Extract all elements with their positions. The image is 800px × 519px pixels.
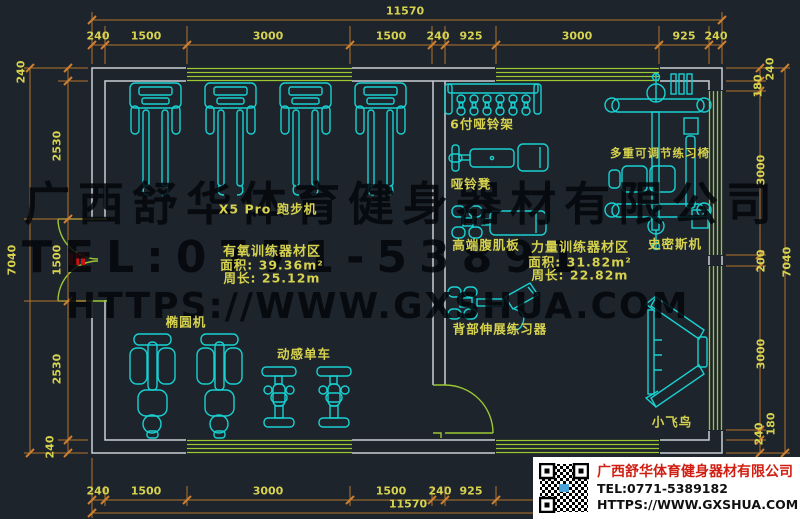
dim-bottom-seg-5: 240 bbox=[429, 485, 452, 498]
treadmill-row bbox=[130, 83, 406, 195]
partition-wall bbox=[433, 81, 445, 385]
smith-machine-label: 史密斯机 bbox=[648, 234, 702, 253]
qr-code bbox=[539, 463, 589, 513]
dim-bottom-seg-2: 1500 bbox=[131, 485, 162, 498]
dumbbell-bench-label: 哑铃凳 bbox=[451, 174, 492, 193]
treadmill-4 bbox=[355, 83, 406, 195]
floorplan-geometry bbox=[0, 0, 800, 519]
dim-top-seg-8: 925 bbox=[673, 30, 696, 43]
adjustable-bench-label: 多重可调节练习椅 bbox=[610, 145, 710, 161]
aerobic-zone-perimeter: 周长: 25.12m bbox=[224, 268, 321, 287]
dim-top-seg-5: 240 bbox=[427, 30, 450, 43]
dim-top-seg-7: 3000 bbox=[562, 30, 593, 43]
dim-top-seg-4: 1500 bbox=[376, 30, 407, 43]
dim-bottom-seg-4: 1500 bbox=[376, 485, 407, 498]
dim-bottom-overall: 11570 bbox=[389, 498, 427, 511]
dim-bottom-seg-6: 925 bbox=[460, 485, 483, 498]
elliptical-2 bbox=[197, 334, 242, 438]
ab-board bbox=[452, 206, 546, 238]
dim-right-seg-5: 3000 bbox=[755, 339, 768, 370]
dim-right-overall: 7040 bbox=[781, 247, 794, 278]
treadmill-3 bbox=[280, 83, 331, 195]
ab-board-label: 高端腹肌板 bbox=[452, 235, 520, 254]
info-company-name: 广西舒华体育健身器材有限公司 bbox=[597, 464, 798, 482]
dim-right-seg-3: 3000 bbox=[755, 155, 768, 186]
elliptical-1 bbox=[130, 334, 175, 438]
treadmill-label: X5 Pro 跑步机 bbox=[219, 199, 317, 218]
back-extension-label: 背部伸展练习器 bbox=[453, 319, 548, 338]
fly-bird-machine bbox=[646, 296, 707, 407]
dim-right-seg-6: 180 bbox=[765, 413, 778, 436]
elliptical-machines bbox=[130, 334, 242, 438]
dim-left-overall: 7040 bbox=[6, 245, 19, 276]
spin-bike-label: 动感单车 bbox=[277, 344, 331, 363]
treadmill-1 bbox=[130, 83, 181, 195]
fly-bird-label: 小飞鸟 bbox=[652, 412, 693, 431]
info-website: HTTPS://WWW.GXSHUA.COM bbox=[597, 497, 798, 513]
dumbbell-rack bbox=[445, 84, 541, 115]
info-telephone: TEL:0771-5389182 bbox=[597, 481, 798, 497]
dim-left-seg-2: 2530 bbox=[51, 131, 64, 162]
dim-bottom-seg-3: 3000 bbox=[253, 485, 284, 498]
dim-left-seg-1: 240 bbox=[15, 61, 28, 84]
dim-right-seg-7: 240 bbox=[753, 423, 766, 446]
spin-bike-1 bbox=[262, 367, 296, 427]
dim-top-seg-2: 1500 bbox=[131, 30, 162, 43]
elliptical-label: 椭圆机 bbox=[166, 312, 207, 331]
dim-right-seg-4: 200 bbox=[755, 250, 768, 273]
treadmill-2 bbox=[205, 83, 256, 195]
spin-bikes bbox=[262, 367, 351, 427]
dim-left-seg-4: 2530 bbox=[51, 354, 64, 385]
smith-machine-and-bench bbox=[605, 74, 711, 250]
dumbbell-bench bbox=[449, 144, 548, 171]
cad-floorplan-canvas[interactable]: 广西舒华体育健身器材有限公司 TEL:0771-53891 HTTPS://WW… bbox=[0, 0, 800, 519]
dim-top-seg-1: 240 bbox=[87, 30, 110, 43]
dim-top-seg-9: 240 bbox=[705, 30, 728, 43]
partition-door bbox=[433, 385, 493, 438]
dim-right-seg-2: 180 bbox=[752, 75, 765, 98]
dimension-ticks bbox=[26, 16, 789, 517]
dim-left-seg-3: 1500 bbox=[51, 245, 64, 276]
spin-bike-2 bbox=[317, 367, 351, 427]
dim-left-seg-5: 240 bbox=[44, 436, 57, 459]
dim-top-seg-3: 3000 bbox=[253, 30, 284, 43]
dumbbell-rack-label: 6付哑铃架 bbox=[450, 114, 514, 133]
dim-bottom-seg-1: 240 bbox=[87, 485, 110, 498]
dim-right-seg-1: 240 bbox=[764, 58, 777, 81]
dim-top-seg-6: 925 bbox=[460, 30, 483, 43]
dim-top-overall: 11570 bbox=[386, 5, 424, 18]
strength-zone-perimeter: 周长: 22.82m bbox=[532, 265, 629, 284]
entrance-opening bbox=[89, 220, 108, 300]
company-info-box: 广西舒华体育健身器材有限公司 TEL:0771-5389182 HTTPS://… bbox=[533, 457, 800, 519]
door-stamp bbox=[69, 253, 85, 265]
